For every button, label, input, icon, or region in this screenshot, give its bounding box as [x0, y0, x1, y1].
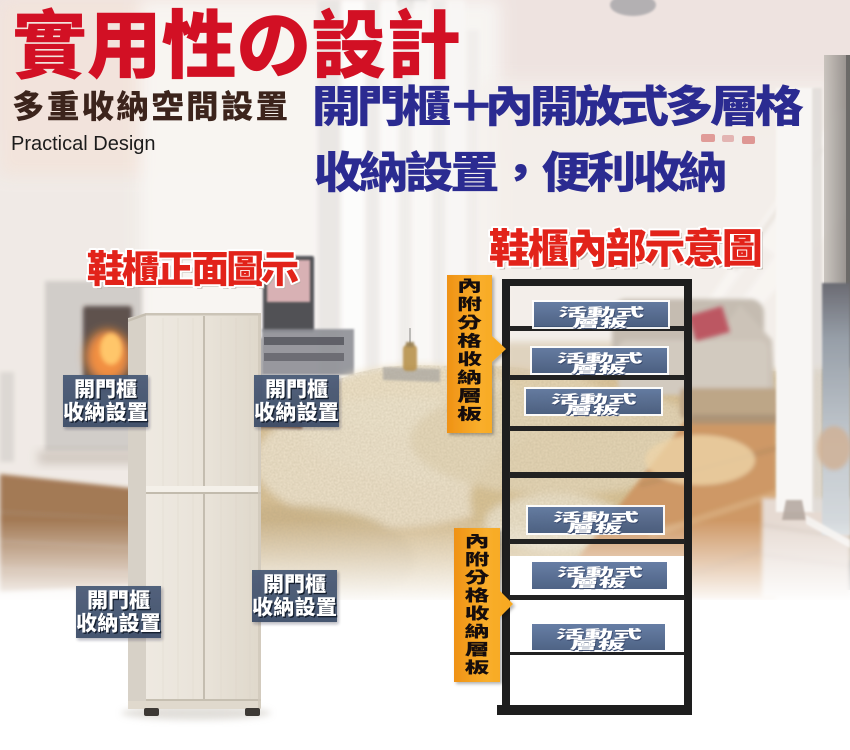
svg-text:Practical Design: Practical Design	[11, 133, 156, 155]
